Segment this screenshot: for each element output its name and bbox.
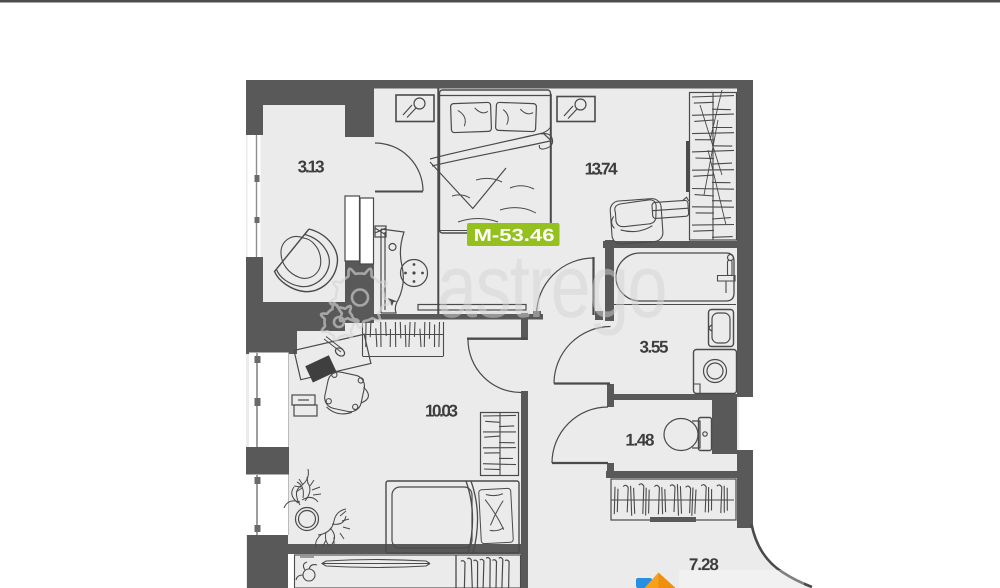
svg-text:10.03: 10.03 <box>425 401 458 420</box>
svg-text:3.55: 3.55 <box>639 338 668 357</box>
svg-text:М-53.46: М-53.46 <box>473 225 554 245</box>
svg-text:astrego: astrego <box>437 237 666 337</box>
svg-text:1.48: 1.48 <box>625 431 654 450</box>
svg-text:3.13: 3.13 <box>298 157 325 176</box>
svg-text:13.74: 13.74 <box>585 160 619 179</box>
